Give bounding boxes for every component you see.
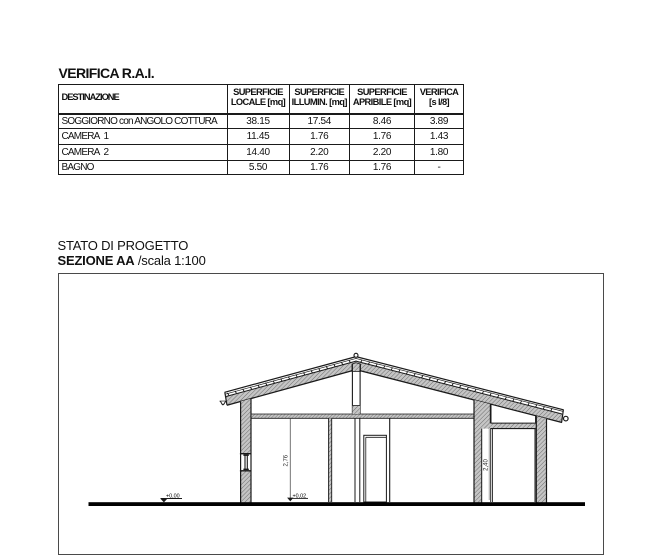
svg-text:+0,00: +0,00 xyxy=(166,493,180,499)
svg-text:+0,02: +0,02 xyxy=(293,493,307,499)
svg-text:2,76: 2,76 xyxy=(283,454,289,466)
svg-text:2,40: 2,40 xyxy=(484,459,490,471)
